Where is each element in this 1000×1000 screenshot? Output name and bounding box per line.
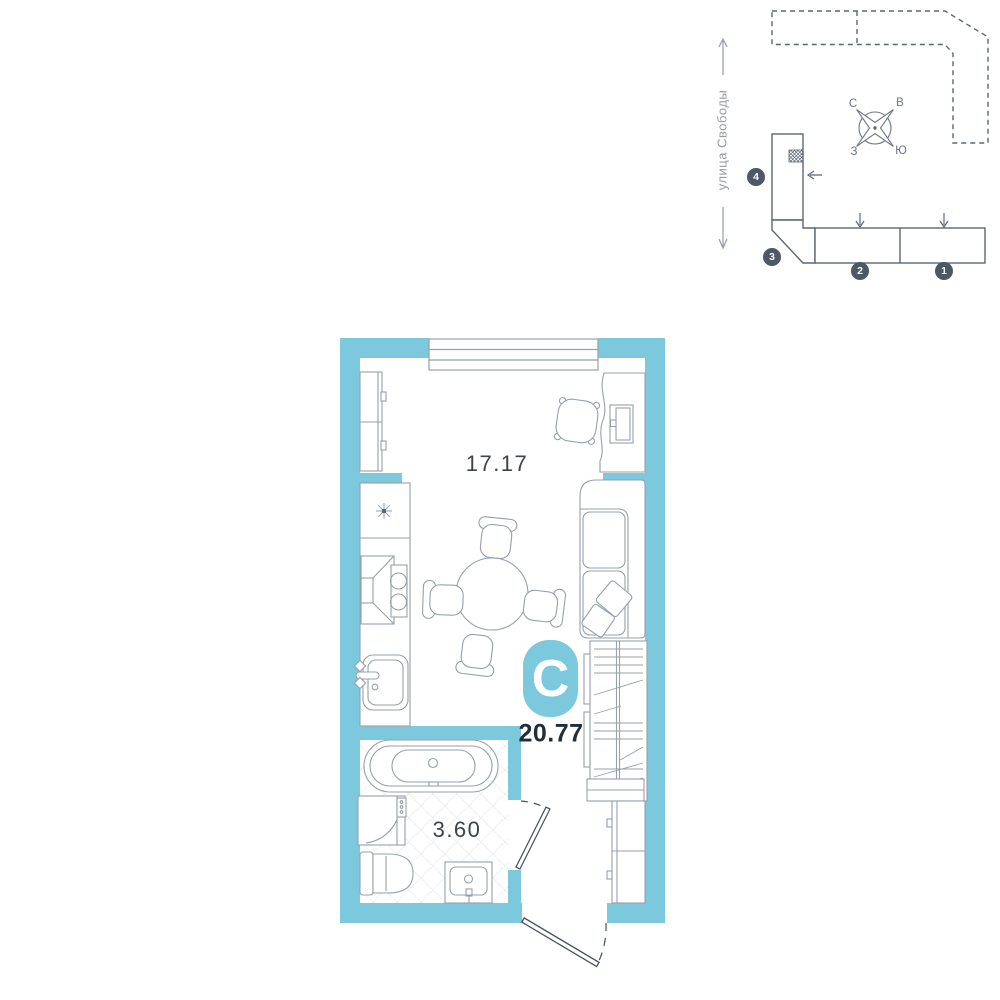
street-arrow-up-icon [719, 39, 727, 75]
apartment-marker-icon [789, 150, 803, 162]
entrance-arrow-left-icon [808, 171, 822, 179]
site-building-solid [772, 134, 985, 263]
studio-type-badge: С [523, 640, 578, 717]
sofa [580, 480, 645, 638]
desk [600, 373, 645, 472]
section-badge-4: 4 [747, 168, 765, 186]
dining-chair [475, 516, 517, 560]
desk-chair [554, 397, 600, 445]
bathtub [364, 740, 498, 792]
section-badge-1: 1 [935, 262, 953, 280]
window [429, 339, 598, 370]
compass-icon [857, 110, 894, 147]
section-number: 4 [753, 171, 759, 183]
studio-type-letter: С [532, 649, 570, 709]
section-number: 2 [857, 265, 863, 277]
entrance-arrow-down-icon [940, 213, 948, 227]
washing-machine [358, 796, 406, 845]
compass-south-label: Ю [895, 145, 907, 157]
washbasin [445, 862, 492, 903]
compass-north-label: С [849, 98, 857, 110]
vent-asterisk-icon [376, 503, 392, 519]
entrance-arrow-down-icon [856, 213, 864, 227]
section-number: 1 [941, 265, 947, 277]
hall-wardrobe [607, 801, 645, 903]
dining-chair [422, 580, 463, 619]
bathroom-area-label: 3.60 [433, 817, 482, 843]
dining-chair [455, 633, 498, 677]
entrance-arrows [808, 171, 948, 227]
stove [361, 556, 407, 624]
room-area-label: 17.17 [466, 451, 529, 477]
wardrobe [360, 372, 386, 471]
entry-opening [522, 903, 607, 923]
doors [516, 801, 606, 966]
bathroom-door [516, 801, 550, 869]
section-badge-3: 3 [763, 248, 781, 266]
compass-east-label: В [896, 97, 904, 109]
section-badge-2: 2 [851, 262, 869, 280]
street-arrow-down-icon [719, 207, 727, 248]
compass-west-label: З [851, 146, 858, 158]
bed [584, 641, 647, 826]
site-section-4 [772, 134, 803, 220]
site-plan [719, 11, 988, 263]
floor-plan-page: 17.17 3.60 С 20.77 улица Свободы С В З Ю… [0, 0, 1000, 1000]
total-area-label: 20.77 [518, 720, 583, 749]
street-name-label: улица Свободы [715, 90, 730, 191]
entry-door [522, 918, 606, 967]
dining-table [456, 558, 528, 630]
section-number: 3 [769, 251, 775, 263]
toilet [360, 852, 413, 895]
